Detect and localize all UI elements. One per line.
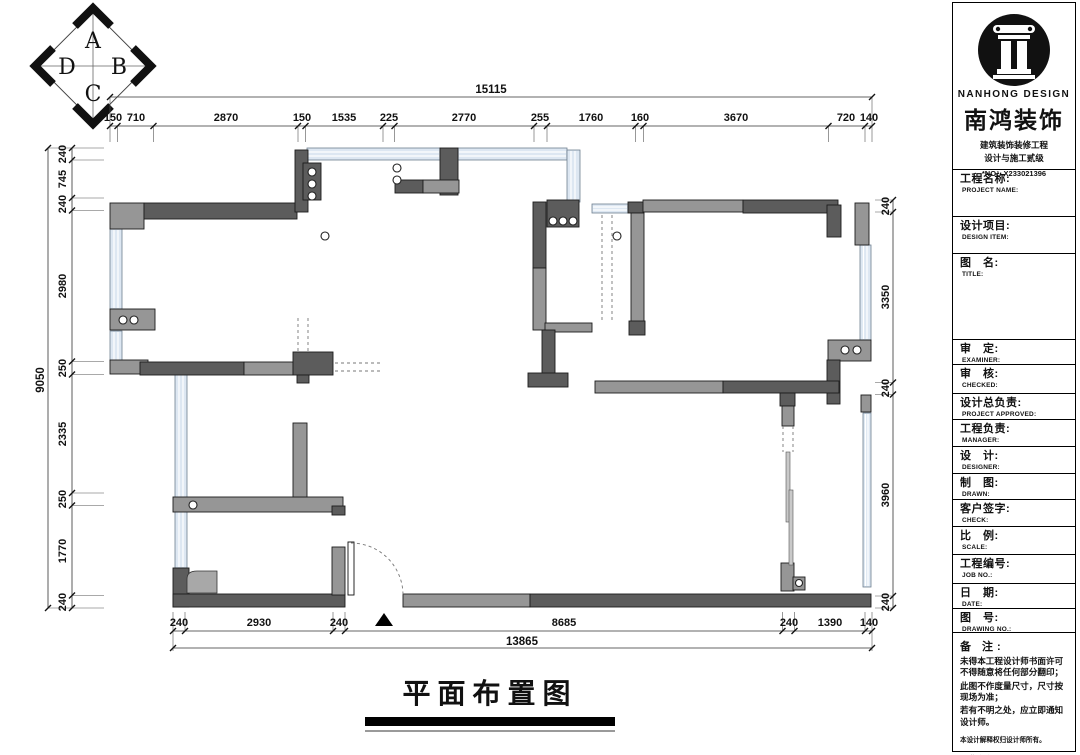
dim-bottom-seg-1: 2930 [247,617,271,629]
field-drawn-cn: 制 图: [960,477,1075,490]
note-1: 未得本工程设计师书面许可不得随意将任何部分翻印； [960,656,1070,679]
sliding-door-panels [786,452,793,565]
field-examiner: 审 定: EXAMINER: [953,339,1075,364]
dim-top-seg-12: 140 [860,112,878,124]
field-designer-cn: 设 计: [960,450,1075,463]
field-scale-cn: 比 例: [960,530,1075,543]
compass-letter-d: D [58,55,76,80]
dim-right-seg-4: 240 [880,593,892,611]
field-designer: 设 计: DESIGNER: [953,446,1075,473]
dim-right-seg-0: 240 [880,197,892,215]
notes-section: 备 注: 未得本工程设计师书面许可不得随意将任何部分翻印； 此图不作度量尺寸，尺… [953,632,1075,755]
dim-bottom-seg-3: 8685 [552,617,576,629]
cert-line-2: 设计与施工贰级 [953,152,1075,165]
field-date-cn: 日 期: [960,587,1075,600]
dim-left-total: 9050 [35,367,47,393]
drawing-title-underline [365,717,615,726]
field-drawing-no: 图 号: DRAWING NO.: [953,608,1075,632]
brand-name-cn: 南鸿装饰 [953,101,1075,135]
compass-letter-c: C [85,82,102,107]
field-design-item: 设计项目: DESIGN ITEM: [953,216,1075,253]
field-job-no-cn: 工程编号: [960,558,1075,571]
dim-left-seg-8: 240 [57,593,69,611]
notes-title: 备 注: [960,638,1070,654]
field-designer-en: DESIGNER: [960,464,1075,471]
dim-bottom-seg-5: 1390 [818,617,842,629]
field-title-cn: 图 名: [960,257,1075,270]
title-block-header: NANHONG DESIGN 南鸿装饰 建筑装饰装修工程 设计与施工贰级 *NO… [953,3,1075,179]
dim-top-seg-5: 225 [380,112,398,124]
field-date-en: DATE: [960,601,1075,608]
field-scale: 比 例: SCALE: [953,526,1075,554]
field-manager-cn: 工程负责: [960,423,1075,436]
drawing-title-underline-thin [365,730,615,732]
field-project-approved-cn: 设计总负责: [960,397,1075,410]
note-3: 若有不明之处，应立即通知设计师。 [960,705,1070,728]
drawing-title-block: 平面布置图 [330,672,650,732]
field-job-no: 工程编号: JOB NO.: [953,554,1075,583]
entry-door-swing-arc [351,543,403,595]
dim-left-seg-7: 1770 [57,539,69,563]
cert-line-1: 建筑装饰装修工程 [953,139,1075,152]
dim-top-seg-8: 1760 [579,112,603,124]
field-design-item-en: DESIGN ITEM: [960,234,1075,241]
dim-right-seg-2: 240 [880,379,892,397]
floor-plan-svg: A B C D [0,0,1080,755]
dim-top-seg-9: 160 [631,112,649,124]
field-drawn-en: DRAWN: [960,491,1075,498]
dim-top-seg-6: 2770 [452,112,476,124]
dim-left-seg-2: 240 [57,195,69,213]
dim-top-seg-2: 2870 [214,112,238,124]
field-project-name-cn: 工程名称: [960,173,1075,186]
dim-top-seg-0: 150 [104,112,122,124]
dim-top-total: 15115 [475,84,507,96]
field-checked-cn: 审 核: [960,368,1075,381]
dim-top-seg-1: 710 [127,112,145,124]
dim-left-seg-0: 240 [57,145,69,163]
compass-letter-a: A [84,29,102,54]
field-project-name: 工程名称: PROJECT NAME: [953,169,1075,216]
dim-top-seg-7: 255 [531,112,549,124]
field-manager: 工程负责: MANAGER: [953,419,1075,446]
field-date: 日 期: DATE: [953,583,1075,608]
field-examiner-en: EXAMINER: [960,357,1075,364]
dim-left-seg-3: 2980 [57,274,69,298]
field-project-name-en: PROJECT NAME: [960,187,1075,194]
field-customer-sign-cn: 客户签字: [960,503,1075,516]
field-title-en: TITLE: [960,271,1075,278]
dim-top-seg-4: 1535 [332,112,356,124]
dim-left-seg-4: 250 [57,359,69,377]
column-logo-icon [977,13,1051,87]
dim-bottom-seg-0: 240 [170,617,188,629]
entry-arrow-icon [375,613,393,626]
compass-letter-b: B [111,55,127,80]
field-job-no-en: JOB NO.: [960,572,1075,579]
dim-right-seg-1: 3350 [880,285,892,309]
field-project-approved-en: PROJECT APPROVED: [960,411,1075,418]
field-customer-sign: 客户签字: CHECK: [953,499,1075,526]
dim-left-seg-6: 250 [57,490,69,508]
dim-left-seg-5: 2335 [57,422,69,446]
field-customer-sign-en: CHECK: [960,517,1075,524]
dim-bottom-seg-4: 240 [780,617,798,629]
entry-door-leaf [348,542,354,595]
note-2: 此图不作度量尺寸，尺寸按现场为准； [960,681,1070,704]
walls-group [110,148,871,607]
field-title: 图 名: TITLE: [953,253,1075,339]
floor-plan-sheet: A B C D [0,0,1080,755]
field-examiner-cn: 审 定: [960,343,1075,356]
dim-bottom-total: 13865 [506,636,539,648]
dim-bottom-seg-6: 140 [860,617,878,629]
certification-lines: 建筑装饰装修工程 设计与施工贰级 [953,139,1075,165]
field-manager-en: MANAGER: [960,437,1075,444]
field-drawing-no-cn: 图 号: [960,612,1075,625]
field-scale-en: SCALE: [960,544,1075,551]
dim-right-seg-3: 3960 [880,483,892,507]
drawing-title-text: 平面布置图 [330,672,650,712]
dim-top-seg-11: 720 [837,112,855,124]
nanhong-logo [977,13,1051,87]
title-block-panel: NANHONG DESIGN 南鸿装饰 建筑装饰装修工程 设计与施工贰级 *NO… [952,2,1076,752]
compass: A B C D [35,8,151,124]
dim-left-seg-1: 745 [57,170,69,188]
field-project-approved: 设计总负责: PROJECT APPROVED: [953,393,1075,419]
field-design-item-cn: 设计项目: [960,220,1075,233]
dim-top-seg-3: 150 [293,112,311,124]
sofa-cabinet [187,571,217,593]
field-drawn: 制 图: DRAWN: [953,473,1075,499]
brand-name-en: NANHONG DESIGN [953,89,1075,100]
copyright-line: 本设计解释权归设计师所有。 [960,734,1070,744]
dim-bottom-seg-2: 240 [330,617,348,629]
dim-top-seg-10: 3670 [724,112,748,124]
field-checked: 审 核: CHECKED: [953,364,1075,393]
field-checked-en: CHECKED: [960,382,1075,389]
